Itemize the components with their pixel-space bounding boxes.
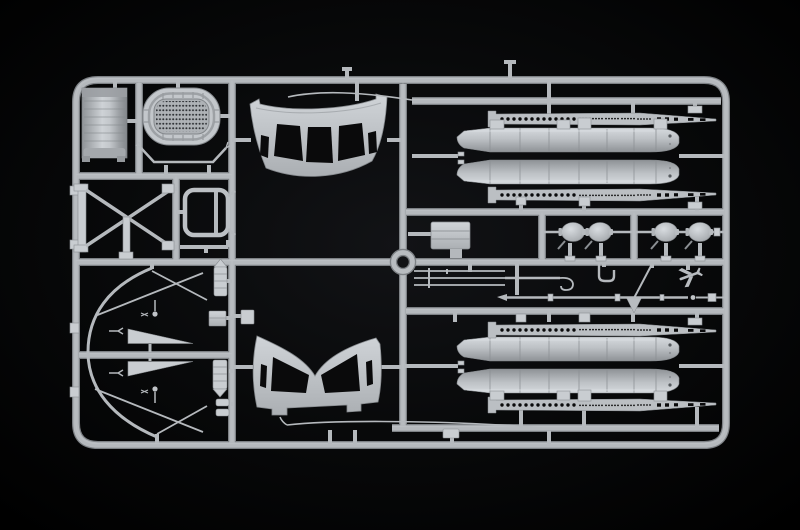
sprue-photo-svg [0,0,800,530]
sprue-photo [0,0,800,530]
mesh-grille [143,88,220,145]
canvas-tarp [82,88,127,162]
